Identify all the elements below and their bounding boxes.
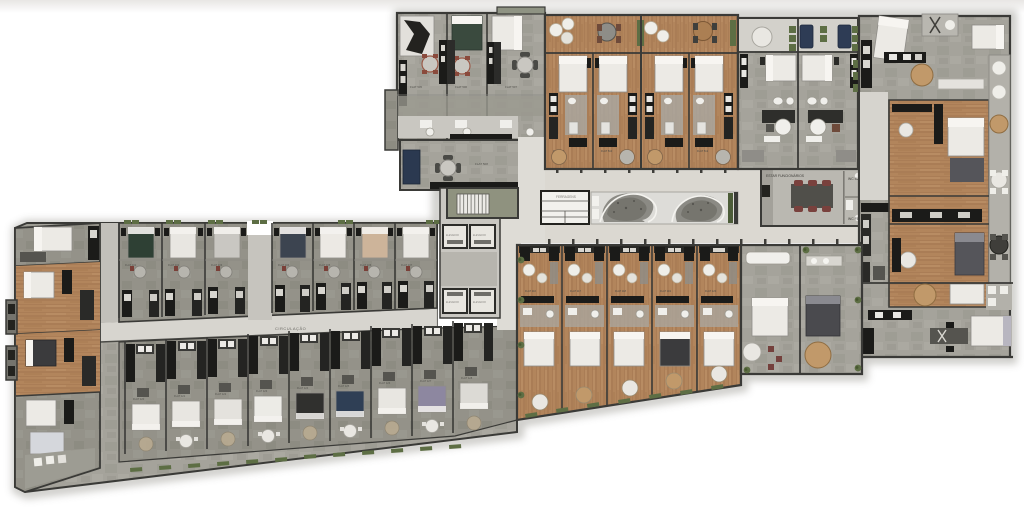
svg-text:ELEVADOR: ELEVADOR: [473, 234, 486, 237]
svg-text:FLAT 117: FLAT 117: [570, 289, 582, 293]
svg-text:FLAT 126: FLAT 126: [379, 381, 391, 385]
svg-text:FLAT 124: FLAT 124: [297, 386, 309, 390]
svg-text:FLAT 506: FLAT 506: [455, 85, 467, 89]
svg-text:FLAT 125: FLAT 125: [338, 384, 350, 388]
svg-text:FLAT 508: FLAT 508: [475, 162, 488, 166]
svg-text:FLAT 120: FLAT 120: [705, 289, 717, 293]
svg-text:ELEVADOR: ELEVADOR: [446, 234, 459, 237]
svg-text:FLAT 118: FLAT 118: [615, 289, 627, 293]
svg-text:FLAT 507: FLAT 507: [505, 85, 517, 89]
svg-text:FLAT 512: FLAT 512: [697, 149, 709, 153]
svg-text:FLAT 127: FLAT 127: [420, 379, 432, 383]
svg-text:FLAT 116: FLAT 116: [525, 289, 537, 293]
svg-text:FLAT 120: FLAT 120: [133, 397, 145, 401]
svg-text:ESTAR FUNCIONÁRIOS: ESTAR FUNCIONÁRIOS: [766, 174, 805, 178]
svg-text:FERRAGENS: FERRAGENS: [556, 195, 576, 199]
svg-text:FLAT 505: FLAT 505: [410, 85, 422, 89]
svg-text:ELEVADOR: ELEVADOR: [446, 301, 459, 304]
svg-text:FLAT 510: FLAT 510: [601, 149, 613, 153]
svg-text:CIRCULAÇÃO: CIRCULAÇÃO: [275, 326, 306, 331]
svg-text:ELEVADOR: ELEVADOR: [473, 301, 486, 304]
svg-text:FLAT 128: FLAT 128: [461, 376, 473, 380]
svg-text:FLAT 122: FLAT 122: [215, 392, 227, 396]
svg-text:FLAT 123: FLAT 123: [256, 389, 268, 393]
svg-text:FLAT 121: FLAT 121: [174, 394, 186, 398]
svg-text:FLAT 119: FLAT 119: [660, 289, 672, 293]
